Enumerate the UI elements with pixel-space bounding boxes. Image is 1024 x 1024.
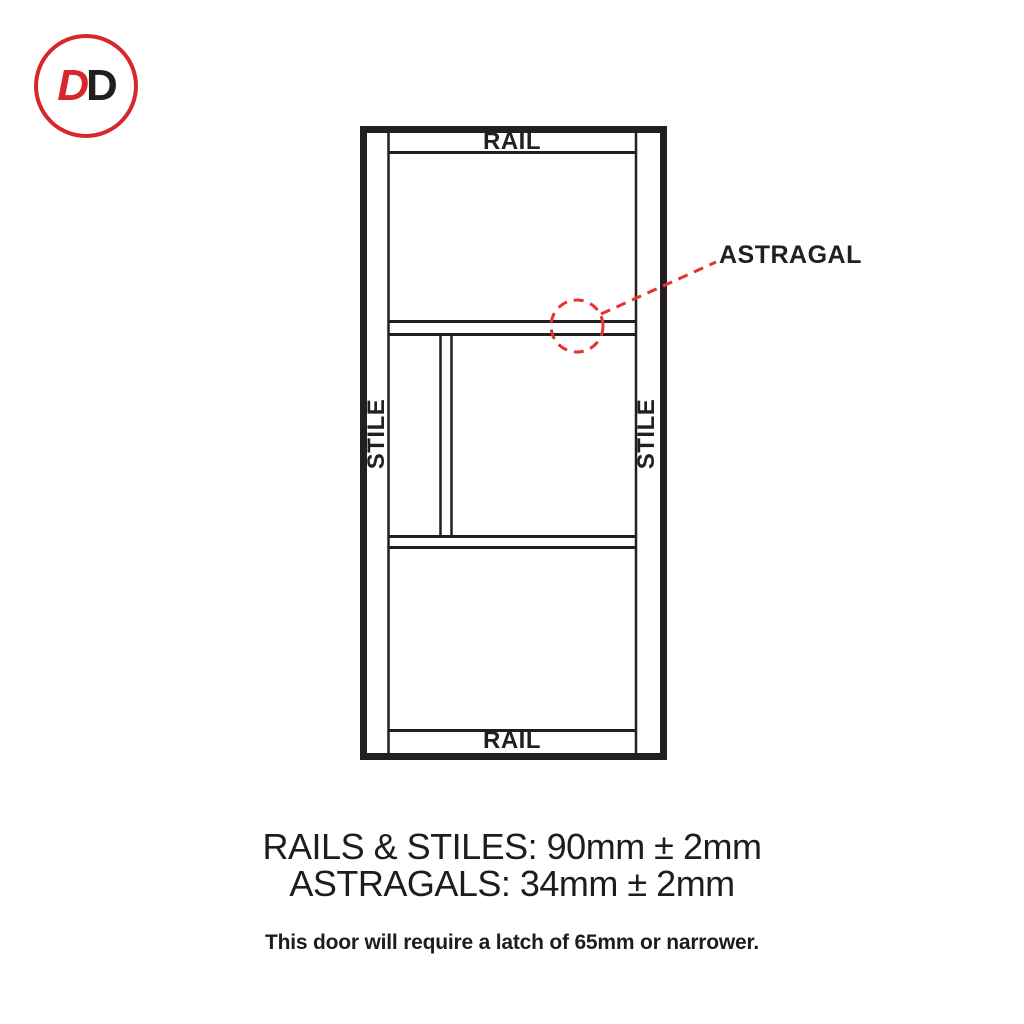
astragal-callout-circle <box>551 300 603 352</box>
astragal-label: ASTRAGAL <box>719 241 862 270</box>
stile-left-label: STILE <box>363 399 391 470</box>
rail-bottom-label: RAIL <box>389 730 635 751</box>
astragals-spec: ASTRAGALS: 34mm ± 2mm <box>0 865 1024 902</box>
page: DD RAIL RAIL STILE STILE ASTRAGAL RAILS … <box>0 0 1024 1024</box>
measurement-specs: RAILS & STILES: 90mm ± 2mm ASTRAGALS: 34… <box>0 828 1024 902</box>
rail-top-label: RAIL <box>389 131 635 152</box>
rails-stiles-spec: RAILS & STILES: 90mm ± 2mm <box>0 828 1024 865</box>
stile-right-label: STILE <box>633 399 661 470</box>
door-outline <box>364 130 664 757</box>
latch-note: This door will require a latch of 65mm o… <box>0 931 1024 955</box>
astragal-callout-leader-line <box>601 262 716 314</box>
